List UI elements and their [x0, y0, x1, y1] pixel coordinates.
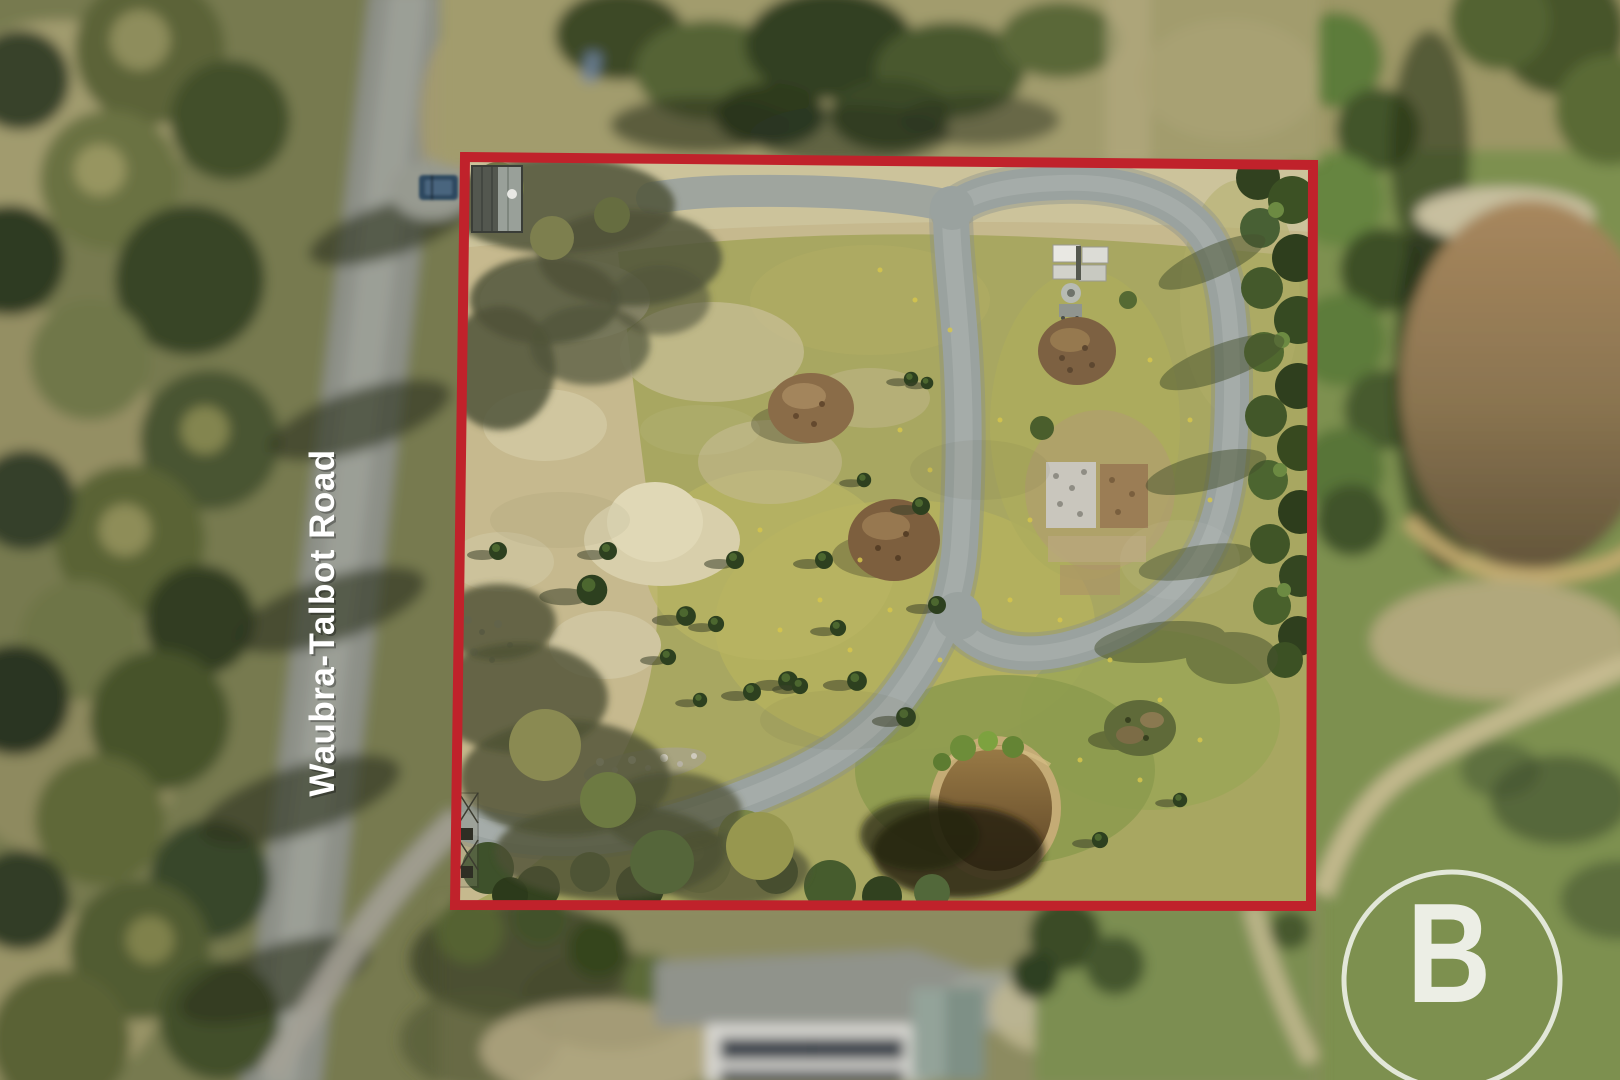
- house-roof-solar: [706, 1024, 928, 1080]
- left-road-corridor: [0, 0, 480, 1080]
- parked-car: [419, 175, 458, 200]
- aerial-photo-canvas: Waubra-Talbot Road Waubra-Talbot Road B: [0, 0, 1620, 1080]
- property-lot-interior: [432, 150, 1323, 916]
- aerial-photo: Waubra-Talbot Road Waubra-Talbot Road B: [0, 0, 1620, 1080]
- bottom-neighbourhood: [400, 890, 1320, 1080]
- water-tank: [1061, 283, 1081, 303]
- agency-watermark-letter: B: [1407, 873, 1491, 1033]
- shed: [472, 166, 522, 232]
- road-name-label: Waubra-Talbot Road: [303, 449, 342, 796]
- shed-roof-teal: [912, 988, 984, 1080]
- dirt-mound-island: [1038, 317, 1116, 385]
- top-paddock: [440, 0, 1320, 165]
- lattice-tower: [459, 793, 478, 887]
